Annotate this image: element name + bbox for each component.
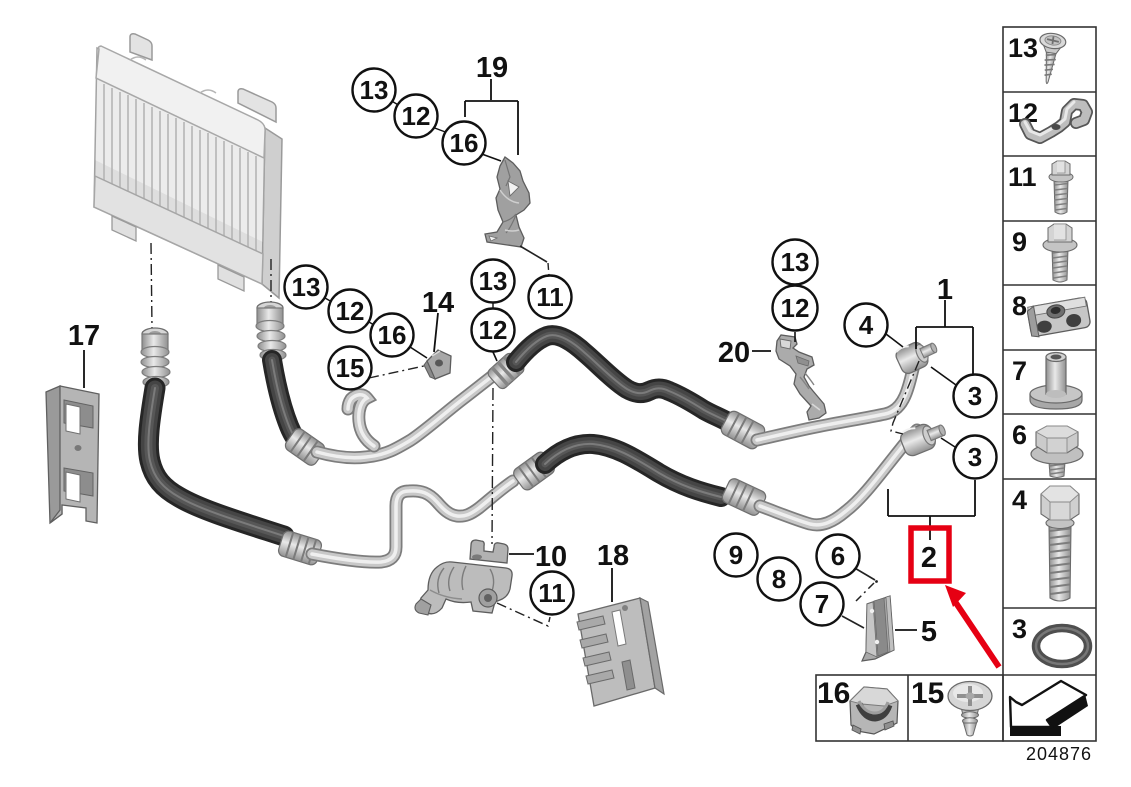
svg-text:15: 15 bbox=[911, 677, 944, 710]
svg-text:7: 7 bbox=[815, 589, 829, 619]
svg-text:6: 6 bbox=[1012, 420, 1027, 450]
svg-text:9: 9 bbox=[1012, 227, 1027, 257]
svg-text:13: 13 bbox=[479, 266, 508, 296]
svg-text:10: 10 bbox=[535, 541, 567, 573]
svg-text:12: 12 bbox=[402, 101, 431, 131]
svg-text:4: 4 bbox=[859, 310, 874, 340]
svg-text:204876: 204876 bbox=[1026, 744, 1092, 764]
svg-text:3: 3 bbox=[968, 381, 982, 411]
svg-text:13: 13 bbox=[781, 247, 810, 277]
svg-text:11: 11 bbox=[536, 282, 564, 312]
svg-text:7: 7 bbox=[1012, 356, 1027, 386]
svg-text:3: 3 bbox=[1012, 614, 1027, 644]
svg-text:11: 11 bbox=[1008, 162, 1037, 192]
svg-text:16: 16 bbox=[817, 677, 850, 710]
svg-text:19: 19 bbox=[476, 52, 508, 84]
svg-text:5: 5 bbox=[921, 616, 937, 648]
svg-text:20: 20 bbox=[718, 337, 750, 369]
svg-text:8: 8 bbox=[1012, 291, 1027, 321]
svg-text:2: 2 bbox=[921, 542, 937, 574]
svg-text:16: 16 bbox=[450, 128, 479, 158]
svg-text:6: 6 bbox=[831, 541, 845, 571]
svg-text:4: 4 bbox=[1012, 485, 1027, 515]
svg-text:11: 11 bbox=[538, 578, 566, 608]
svg-text:13: 13 bbox=[292, 272, 321, 302]
svg-text:15: 15 bbox=[336, 353, 365, 383]
svg-text:17: 17 bbox=[68, 320, 100, 352]
svg-text:8: 8 bbox=[772, 564, 786, 594]
svg-text:12: 12 bbox=[781, 293, 810, 323]
svg-text:1: 1 bbox=[937, 274, 953, 306]
svg-text:13: 13 bbox=[1008, 33, 1038, 63]
svg-text:9: 9 bbox=[729, 540, 743, 570]
svg-text:12: 12 bbox=[336, 296, 365, 326]
svg-text:14: 14 bbox=[422, 287, 454, 319]
svg-text:3: 3 bbox=[968, 442, 982, 472]
svg-text:12: 12 bbox=[479, 315, 508, 345]
svg-text:16: 16 bbox=[378, 320, 407, 350]
svg-text:13: 13 bbox=[360, 75, 389, 105]
svg-text:18: 18 bbox=[597, 540, 629, 572]
